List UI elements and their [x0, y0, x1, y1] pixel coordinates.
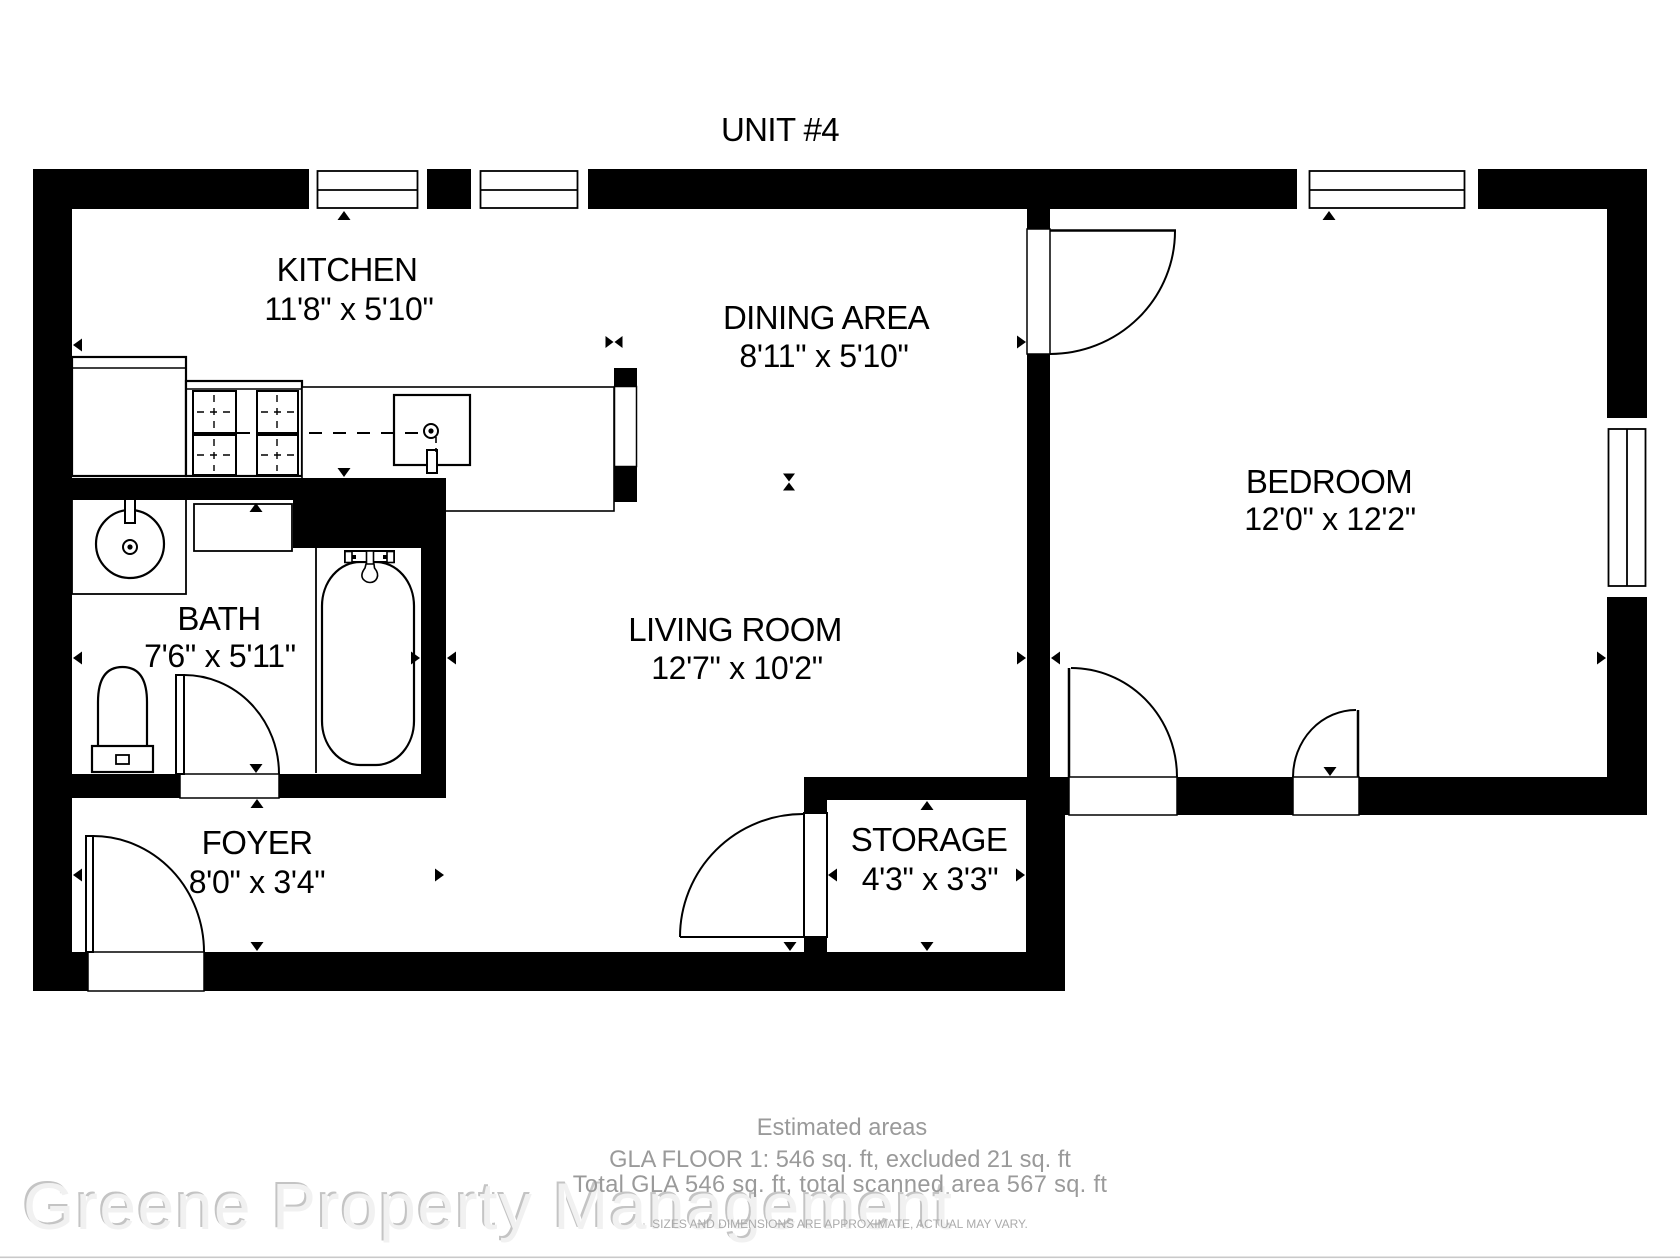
svg-text:7'6" x 5'11": 7'6" x 5'11" [144, 638, 296, 674]
svg-text:12'7" x 10'2": 12'7" x 10'2" [651, 650, 823, 686]
svg-text:BATH: BATH [177, 600, 260, 637]
svg-text:DINING AREA: DINING AREA [723, 299, 930, 336]
svg-text:Estimated areas: Estimated areas [757, 1115, 927, 1141]
svg-text:8'11" x 5'10": 8'11" x 5'10" [739, 338, 908, 374]
svg-text:STORAGE: STORAGE [851, 821, 1008, 858]
svg-text:GLA FLOOR 1: 546 sq. ft, exclu: GLA FLOOR 1: 546 sq. ft, excluded 21 sq.… [609, 1147, 1071, 1173]
svg-text:UNIT #4: UNIT #4 [721, 111, 839, 148]
svg-text:11'8" x 5'10": 11'8" x 5'10" [264, 291, 433, 327]
svg-text:KITCHEN: KITCHEN [277, 251, 418, 288]
svg-text:FOYER: FOYER [202, 824, 313, 861]
svg-text:LIVING ROOM: LIVING ROOM [628, 611, 841, 648]
svg-text:4'3" x 3'3": 4'3" x 3'3" [862, 861, 999, 897]
svg-text:8'0" x 3'4": 8'0" x 3'4" [189, 864, 326, 900]
svg-text:12'0" x 12'2": 12'0" x 12'2" [1244, 501, 1416, 537]
svg-text:BEDROOM: BEDROOM [1246, 463, 1412, 500]
svg-text:Total GLA 546 sq. ft, total sc: Total GLA 546 sq. ft, total scanned area… [573, 1172, 1108, 1198]
svg-text:SIZES AND DIMENSIONS ARE APPRO: SIZES AND DIMENSIONS ARE APPROXIMATE, AC… [652, 1217, 1028, 1231]
